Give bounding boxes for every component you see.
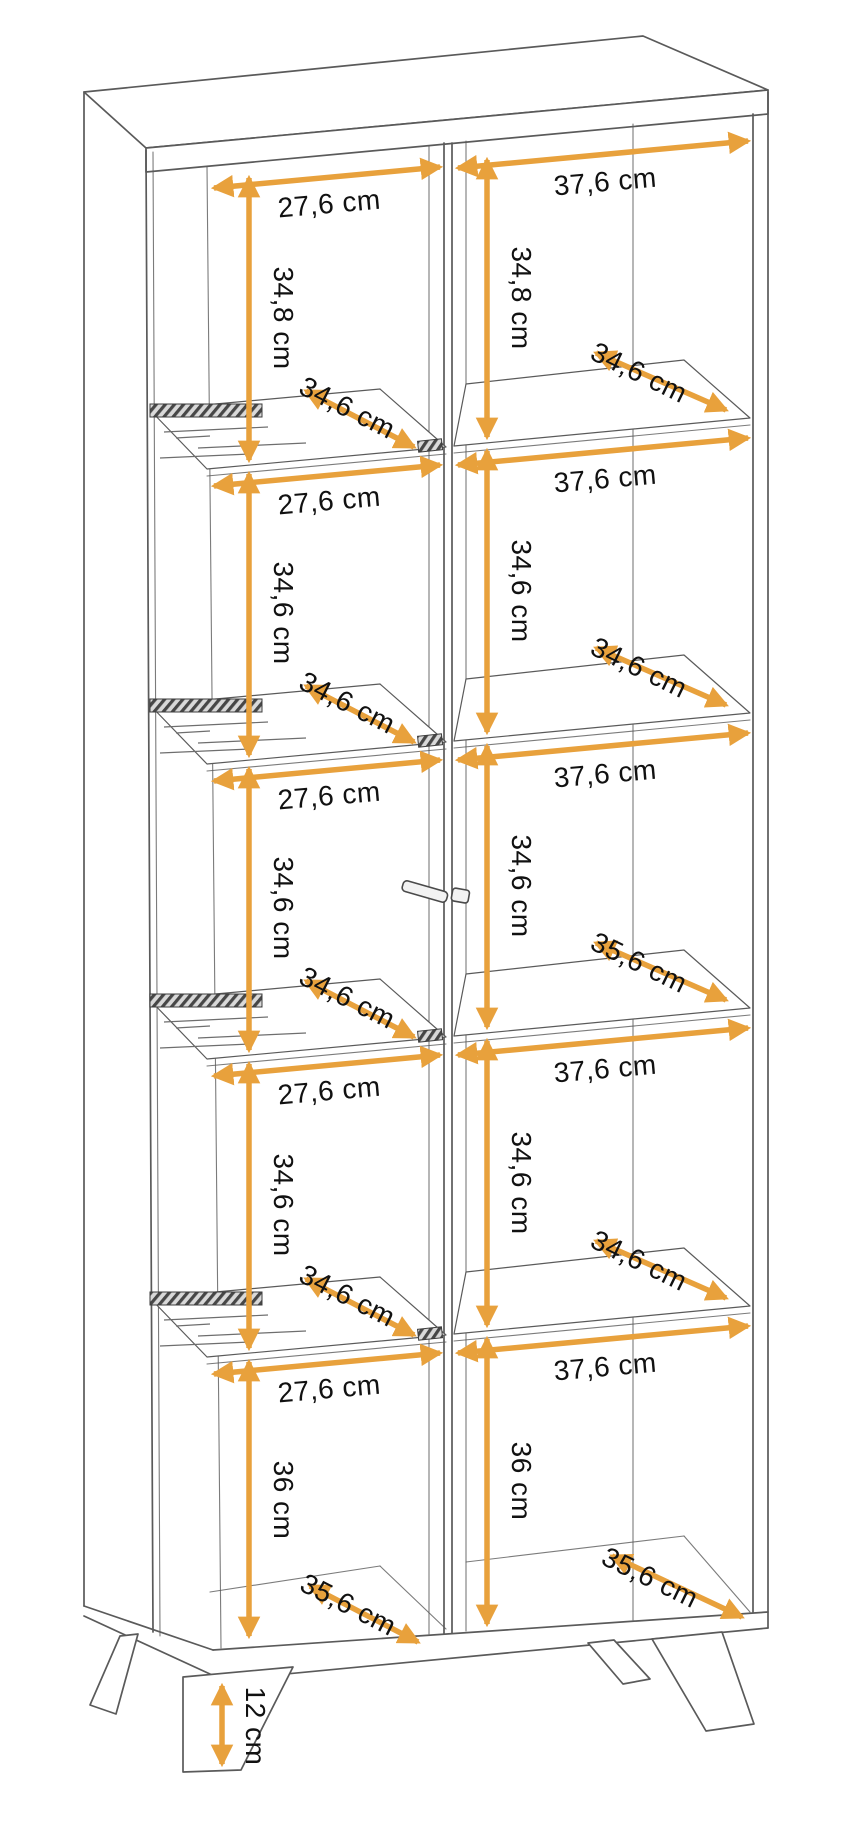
glass-shelf-3 (150, 979, 446, 1066)
wood-shelf-2 (454, 655, 750, 748)
left-height-label-4: 34,6 cm (268, 1153, 299, 1256)
bottom-depth-label-left: 35,6 cm (295, 1567, 401, 1641)
left-width-label-2: 27,6 cm (276, 481, 381, 521)
left-width-label-5: 27,6 cm (276, 1369, 381, 1409)
wood-shelf-4 (454, 1248, 750, 1341)
legs-height-label: 12 cm (240, 1687, 271, 1766)
bottom-depth-label-right: 35,6 cm (597, 1541, 703, 1614)
wood-shelf-3 (454, 950, 750, 1043)
right-height-label-2: 34,6 cm (506, 539, 537, 642)
left-wall-inner-corner (207, 166, 221, 1648)
leg-front-right (652, 1632, 754, 1731)
right-width-label-1: 37,6 cm (552, 162, 657, 202)
left-width-label-1: 27,6 cm (276, 184, 381, 224)
handle-catch (451, 888, 470, 904)
floor-back-edge-left (210, 1566, 380, 1592)
wood-shelves-right (454, 360, 750, 1341)
left-width-label-3: 27,6 cm (276, 776, 381, 816)
right-width-label-5: 37,6 cm (552, 1347, 657, 1387)
front-left-edge-inner (153, 152, 160, 1636)
left-height-label-5: 36 cm (268, 1461, 299, 1540)
right-width-label-2: 37,6 cm (552, 459, 657, 499)
left-width-label-4: 27,6 cm (276, 1071, 381, 1111)
glass-shelf-1 (150, 389, 446, 476)
arrow-right-width-1 (458, 141, 748, 168)
right-width-label-4: 37,6 cm (552, 1049, 657, 1089)
handle-bar (401, 880, 448, 903)
right-height-label-3: 34,6 cm (506, 834, 537, 937)
leg-back-right (588, 1640, 650, 1684)
leg-front-left (183, 1667, 293, 1772)
left-height-label-2: 34,6 cm (268, 561, 299, 664)
glass-shelf-4 (150, 1277, 446, 1364)
right-width-label-3: 37,6 cm (552, 754, 657, 794)
door-handle (401, 880, 470, 904)
right-height-label-1: 34,8 cm (506, 246, 537, 349)
diagram-canvas: 27,6 cm 27,6 cm 27,6 cm 27,6 cm 27,6 cm … (0, 0, 865, 1822)
right-height-label-4: 34,6 cm (506, 1131, 537, 1234)
floor-back-edge-right (466, 1536, 684, 1562)
cabinet-outline (84, 36, 768, 1680)
glass-shelf-2 (150, 684, 446, 771)
side-panel-bottom-edge-top (84, 1606, 213, 1650)
right-height-label-5: 36 cm (506, 1442, 537, 1521)
legs (90, 1632, 754, 1772)
leg-back-left (90, 1634, 138, 1714)
cabinet-dimension-diagram: 27,6 cm 27,6 cm 27,6 cm 27,6 cm 27,6 cm … (0, 0, 865, 1822)
left-height-label-1: 34,8 cm (268, 266, 299, 369)
front-left-edge-outer (146, 150, 153, 1632)
left-height-label-3: 34,6 cm (268, 856, 299, 959)
wood-shelf-1 (454, 360, 750, 453)
